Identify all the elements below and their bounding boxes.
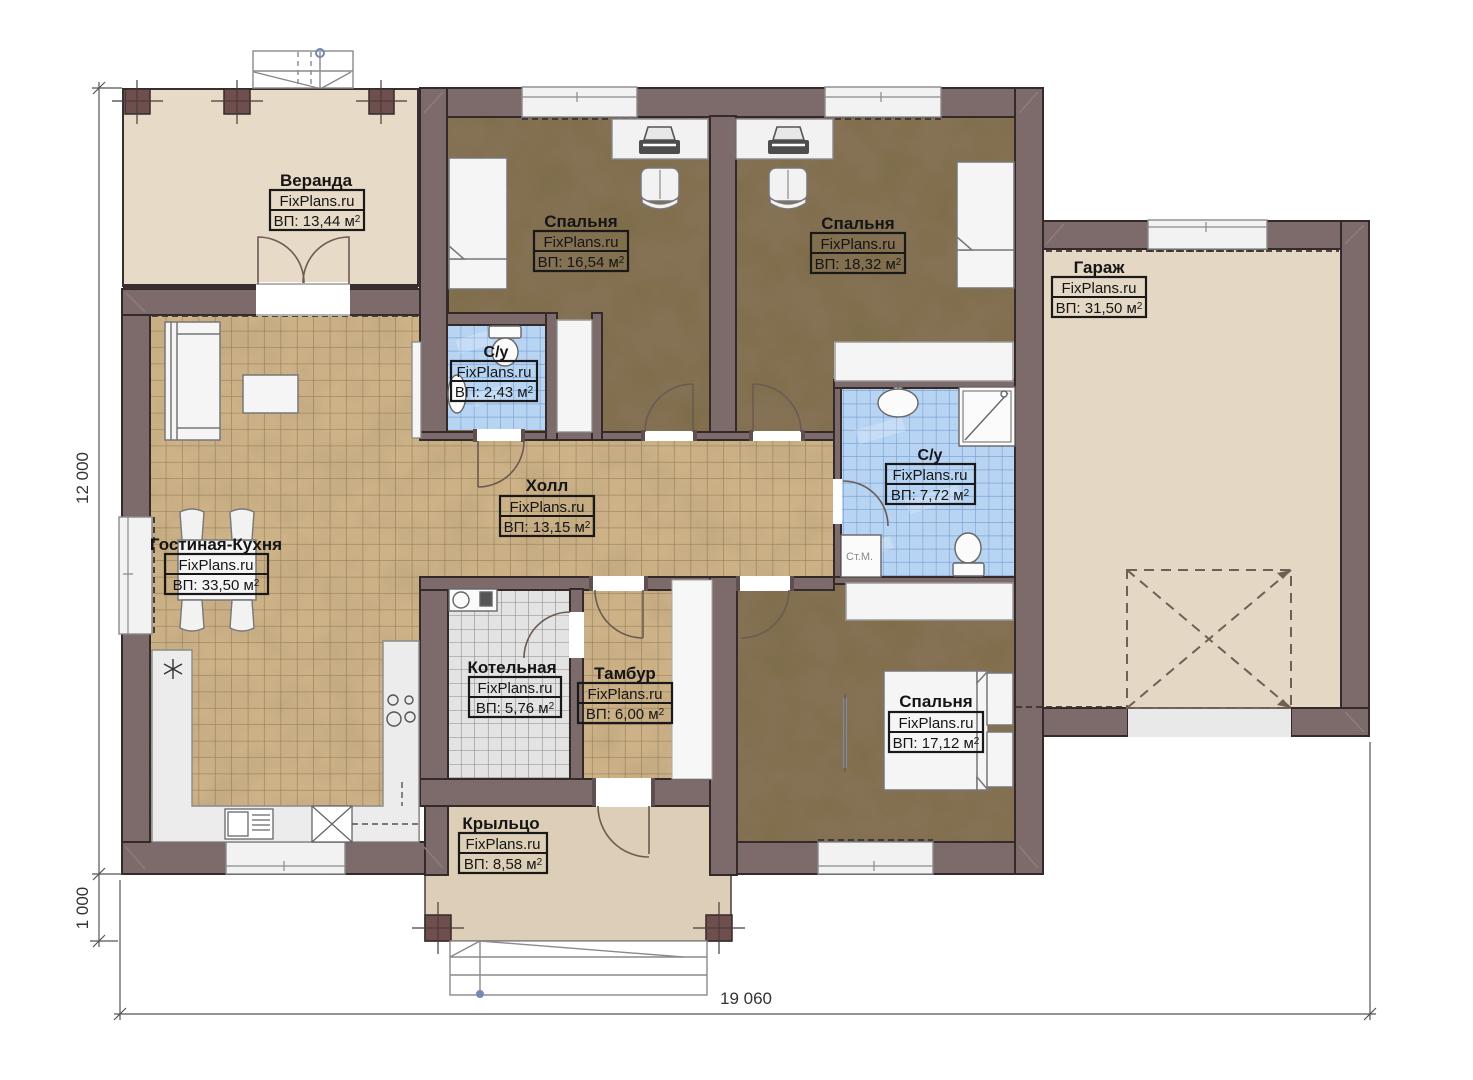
svg-text:FixPlans.ru: FixPlans.ru xyxy=(820,236,895,253)
svg-text:Холл: Холл xyxy=(526,476,569,495)
svg-text:ВП: 13,44 м2: ВП: 13,44 м2 xyxy=(274,213,361,230)
svg-text:Спальня: Спальня xyxy=(544,212,617,231)
svg-text:Гараж: Гараж xyxy=(1074,258,1126,277)
svg-text:Гостиная-Кухня: Гостиная-Кухня xyxy=(150,535,282,554)
svg-text:FixPlans.ru: FixPlans.ru xyxy=(892,467,967,484)
svg-text:ВП: 31,50 м2: ВП: 31,50 м2 xyxy=(1056,300,1143,317)
svg-text:FixPlans.ru: FixPlans.ru xyxy=(477,680,552,697)
svg-text:Веранда: Веранда xyxy=(280,171,353,190)
svg-text:ВП: 7,72 м2: ВП: 7,72 м2 xyxy=(891,487,970,504)
svg-text:ВП: 17,12 м2: ВП: 17,12 м2 xyxy=(893,735,980,752)
svg-text:Спальня: Спальня xyxy=(821,214,894,233)
svg-text:ВП: 13,15 м2: ВП: 13,15 м2 xyxy=(504,519,591,536)
svg-text:FixPlans.ru: FixPlans.ru xyxy=(465,836,540,853)
svg-text:Тамбур: Тамбур xyxy=(594,664,656,683)
svg-text:FixPlans.ru: FixPlans.ru xyxy=(509,499,584,516)
svg-text:19 060: 19 060 xyxy=(720,989,772,1008)
svg-text:ВП: 8,58 м2: ВП: 8,58 м2 xyxy=(464,856,543,873)
svg-text:FixPlans.ru: FixPlans.ru xyxy=(456,364,531,381)
svg-text:FixPlans.ru: FixPlans.ru xyxy=(178,557,253,574)
svg-text:12 000: 12 000 xyxy=(73,452,92,504)
svg-text:FixPlans.ru: FixPlans.ru xyxy=(279,193,354,210)
svg-text:ВП: 16,54 м2: ВП: 16,54 м2 xyxy=(538,254,625,271)
svg-text:Спальня: Спальня xyxy=(899,692,972,711)
svg-text:FixPlans.ru: FixPlans.ru xyxy=(898,715,973,732)
svg-text:Крыльцо: Крыльцо xyxy=(462,814,539,833)
svg-text:FixPlans.ru: FixPlans.ru xyxy=(587,686,662,703)
svg-text:ВП: 5,76 м2: ВП: 5,76 м2 xyxy=(476,700,555,717)
svg-text:ВП: 18,32 м2: ВП: 18,32 м2 xyxy=(815,256,902,273)
svg-text:FixPlans.ru: FixPlans.ru xyxy=(1061,280,1136,297)
svg-text:1 000: 1 000 xyxy=(73,887,92,930)
svg-text:С/у: С/у xyxy=(484,344,509,361)
svg-text:Котельная: Котельная xyxy=(467,658,556,677)
svg-text:С/у: С/у xyxy=(918,447,943,464)
svg-text:ВП: 33,50 м2: ВП: 33,50 м2 xyxy=(173,577,260,594)
svg-text:FixPlans.ru: FixPlans.ru xyxy=(543,234,618,251)
svg-text:ВП: 6,00 м2: ВП: 6,00 м2 xyxy=(586,706,665,723)
svg-text:ВП: 2,43 м2: ВП: 2,43 м2 xyxy=(455,384,534,401)
svg-text:Ст.М.: Ст.М. xyxy=(846,551,873,563)
